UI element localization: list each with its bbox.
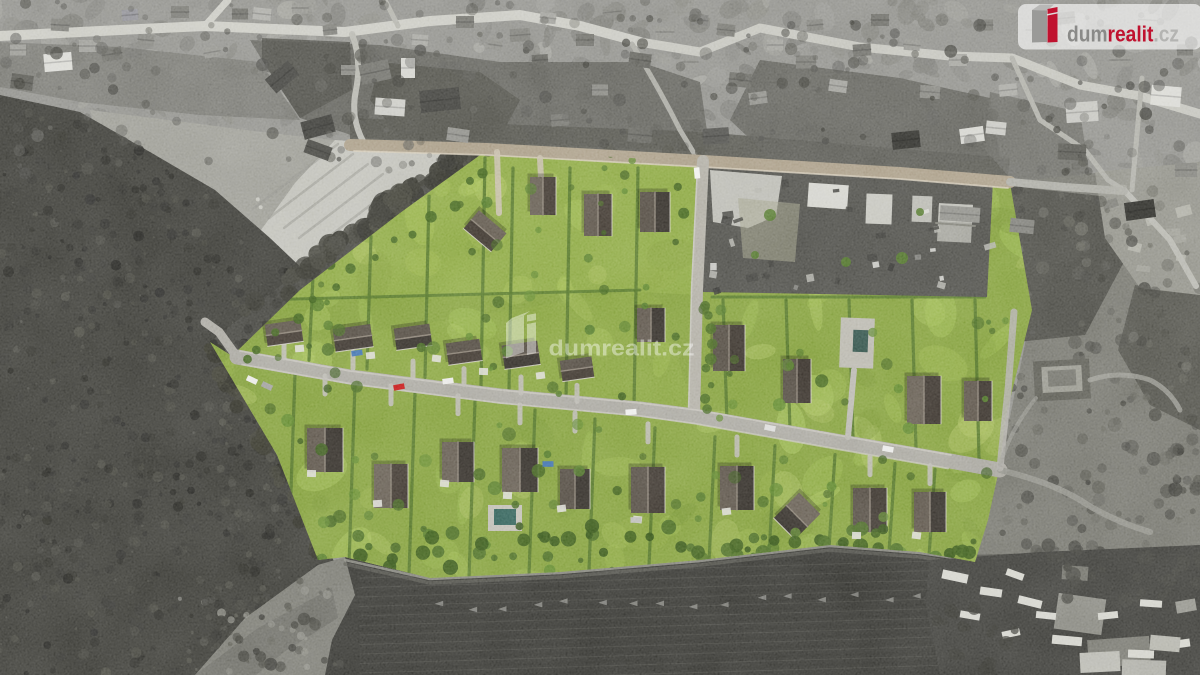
svg-text:dumrealit.cz: dumrealit.cz [549, 336, 695, 361]
svg-text:dumrealit.cz: dumrealit.cz [1067, 22, 1179, 47]
